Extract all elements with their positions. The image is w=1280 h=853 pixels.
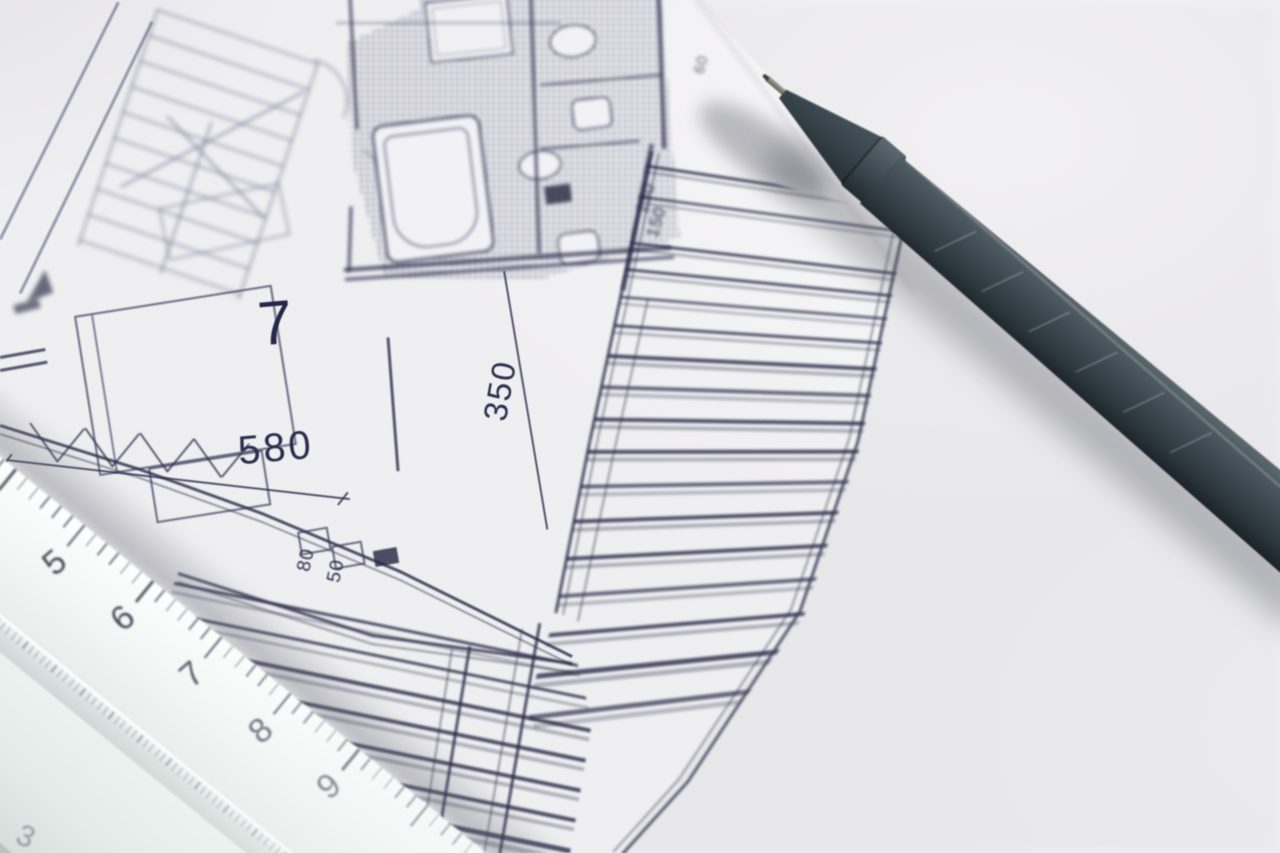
photo-architectural-plan: 130 150 60 80 50 7 580 350 (0, 0, 1280, 853)
